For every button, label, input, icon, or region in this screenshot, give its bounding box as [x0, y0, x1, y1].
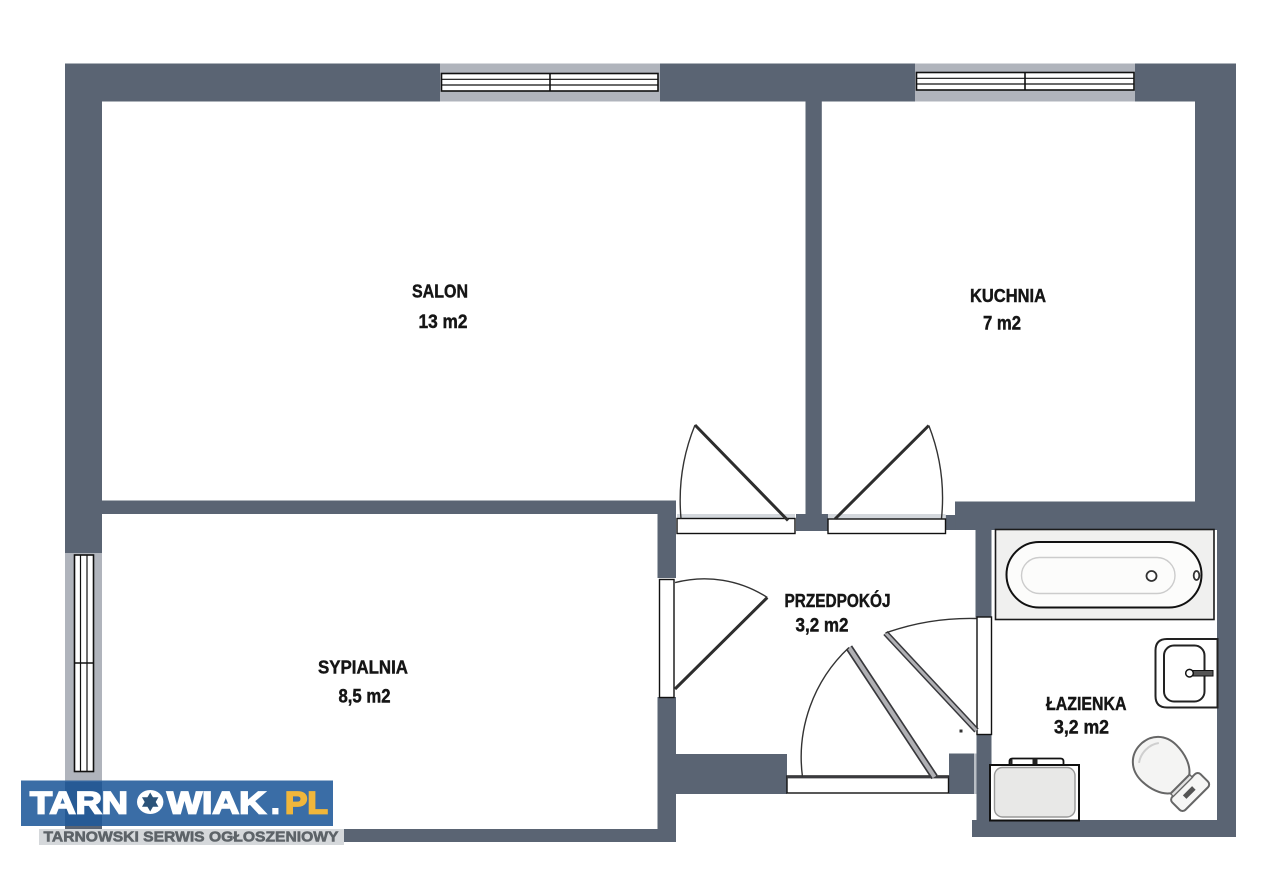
- svg-text:8,5 m2: 8,5 m2: [339, 687, 391, 708]
- svg-text:.: .: [271, 785, 280, 821]
- svg-text:TARNOWSKI SERWIS OGŁOSZENIOWY: TARNOWSKI SERWIS OGŁOSZENIOWY: [44, 829, 339, 846]
- svg-text:ŁAZIENKA: ŁAZIENKA: [1046, 693, 1127, 714]
- svg-text:13 m2: 13 m2: [419, 312, 468, 333]
- svg-text:TARN: TARN: [30, 785, 128, 821]
- svg-text:3,2 m2: 3,2 m2: [796, 616, 849, 637]
- svg-text:SYPIALNIA: SYPIALNIA: [318, 657, 408, 678]
- svg-text:3,2 m2: 3,2 m2: [1054, 718, 1109, 739]
- svg-text:WIAK: WIAK: [167, 785, 266, 821]
- svg-text:PL: PL: [285, 785, 328, 821]
- svg-text:PRZEDPOKÓJ: PRZEDPOKÓJ: [785, 590, 891, 611]
- svg-text:KUCHNIA: KUCHNIA: [970, 285, 1046, 306]
- svg-text:7 m2: 7 m2: [983, 314, 1021, 335]
- svg-text:SALON: SALON: [412, 281, 468, 302]
